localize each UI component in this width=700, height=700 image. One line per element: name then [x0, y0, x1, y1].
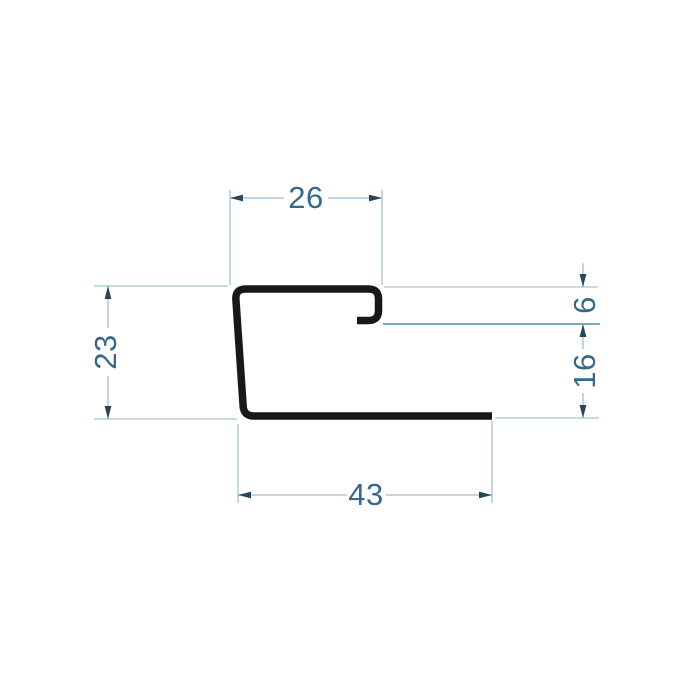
arrowhead-up — [105, 286, 112, 299]
technical-drawing: 26 23 6 16 — [0, 0, 700, 700]
arrowhead-up — [580, 324, 587, 337]
profile-outline — [236, 289, 492, 416]
arrowhead-right — [369, 195, 382, 202]
dimension-left-height: 23 — [88, 286, 237, 419]
dimension-value-bottom-width: 43 — [348, 477, 383, 512]
dimension-value-hook-depth: 6 — [567, 296, 602, 314]
arrowhead-down — [580, 274, 587, 287]
arrowhead-down — [105, 406, 112, 419]
dimension-right-lower-height: 16 — [495, 324, 602, 418]
dimension-value-right-lower-height: 16 — [567, 353, 602, 388]
dimension-value-left-height: 23 — [88, 334, 123, 369]
dimension-bottom-width: 43 — [238, 421, 492, 512]
profile-diagram-svg: 26 23 6 16 — [0, 0, 700, 700]
dimension-value-top-width: 26 — [288, 180, 323, 215]
dimension-hook-depth: 6 — [383, 263, 602, 324]
arrowhead-right — [479, 492, 492, 499]
arrowhead-left — [230, 195, 243, 202]
dimension-top-width: 26 — [230, 180, 382, 285]
arrowhead-down — [580, 405, 587, 418]
arrowhead-left — [238, 492, 251, 499]
